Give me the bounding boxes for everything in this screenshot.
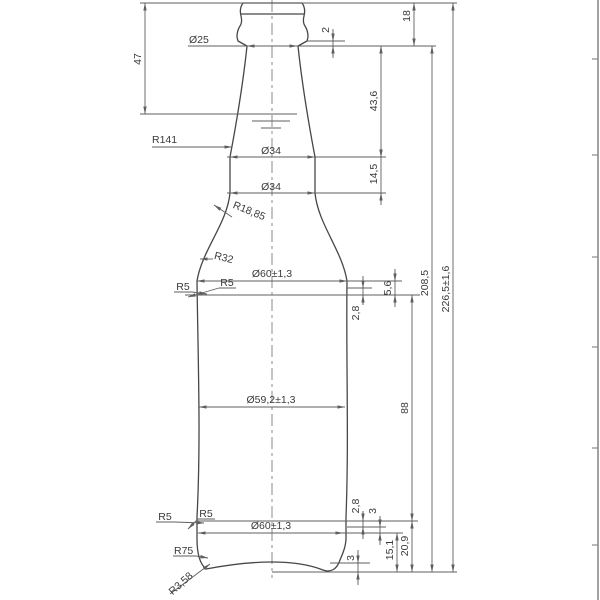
fill-level-mark xyxy=(252,121,290,128)
radius-leaders xyxy=(152,147,236,594)
label-dim15-1: 15,1 xyxy=(384,540,396,561)
label-dim2: 2 xyxy=(320,27,332,33)
label-r5-top-1: R5 xyxy=(176,281,190,293)
label-dim14-5: 14,5 xyxy=(368,164,380,185)
drawing-canvas: Ø25 2 18 47 43,6 R141 Ø34 14,5 Ø34 R18,8… xyxy=(0,0,600,600)
label-r75: R75 xyxy=(174,545,193,557)
leader-r5b1 xyxy=(174,522,204,523)
drawing-frame xyxy=(592,0,598,600)
label-dim3-punt: 3 xyxy=(345,555,357,561)
leader-r18-85 xyxy=(214,205,232,217)
label-dia34a: Ø34 xyxy=(261,145,281,157)
label-dim2-8-top: 2,8 xyxy=(350,306,362,321)
label-dia59-2: Ø59,2±1,3 xyxy=(247,394,296,406)
label-r32: R32 xyxy=(213,250,235,266)
label-dim18: 18 xyxy=(401,10,413,22)
dimension-labels: Ø25 2 18 47 43,6 R141 Ø34 14,5 Ø34 R18,8… xyxy=(132,10,452,598)
bottle-technical-drawing: Ø25 2 18 47 43,6 R141 Ø34 14,5 Ø34 R18,8… xyxy=(0,0,600,600)
label-dia25: Ø25 xyxy=(189,34,209,46)
label-r5-bottom-1: R5 xyxy=(158,511,172,523)
vertical-dimension-lines xyxy=(145,3,453,572)
leader-r75 xyxy=(196,556,208,558)
label-dim88: 88 xyxy=(399,402,411,414)
label-dia60-bottom: Ø60±1,3 xyxy=(251,520,291,532)
label-dim20-9: 20,9 xyxy=(399,536,411,557)
label-dim43-6: 43,6 xyxy=(368,91,380,112)
label-dia34b: Ø34 xyxy=(261,181,281,193)
label-r5-bottom-2: R5 xyxy=(199,508,213,520)
label-r141: R141 xyxy=(152,134,177,146)
label-dim47: 47 xyxy=(132,53,144,65)
small-dimension-lines xyxy=(333,29,395,585)
label-dim208-5: 208,5 xyxy=(419,270,431,296)
label-dim5-6: 5,6 xyxy=(382,281,394,296)
label-r5-top-2: R5 xyxy=(220,277,234,289)
label-dia60-top: Ø60±1,3 xyxy=(252,268,292,280)
label-r18-85: R18,85 xyxy=(231,199,267,223)
label-r3-58: R3,58 xyxy=(167,570,196,598)
label-dim226-5: 226,5±1,6 xyxy=(440,266,452,313)
label-dim3-bottom: 3 xyxy=(367,508,379,514)
label-dim2-8-bottom: 2,8 xyxy=(350,499,362,514)
